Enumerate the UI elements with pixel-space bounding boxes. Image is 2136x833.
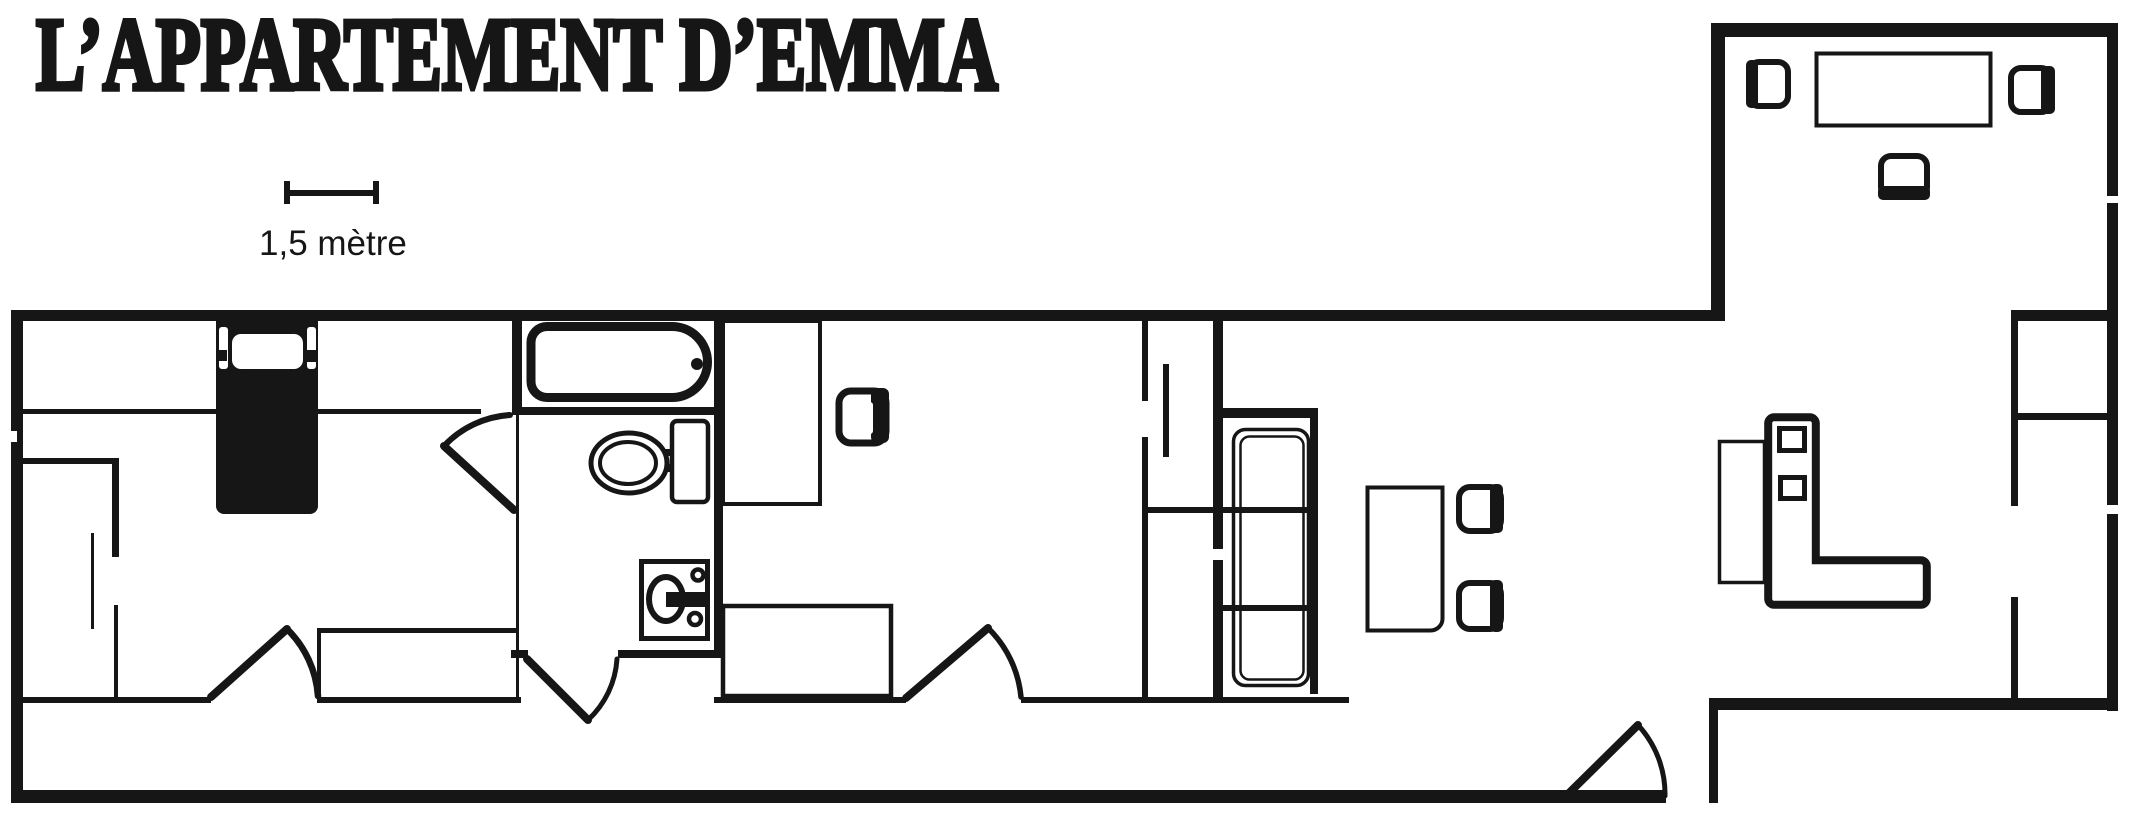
svg-text:L’APPARTEMENT D’EMMA: L’APPARTEMENT D’EMMA <box>36 0 998 112</box>
svg-text:1,5 mètre: 1,5 mètre <box>259 224 407 263</box>
